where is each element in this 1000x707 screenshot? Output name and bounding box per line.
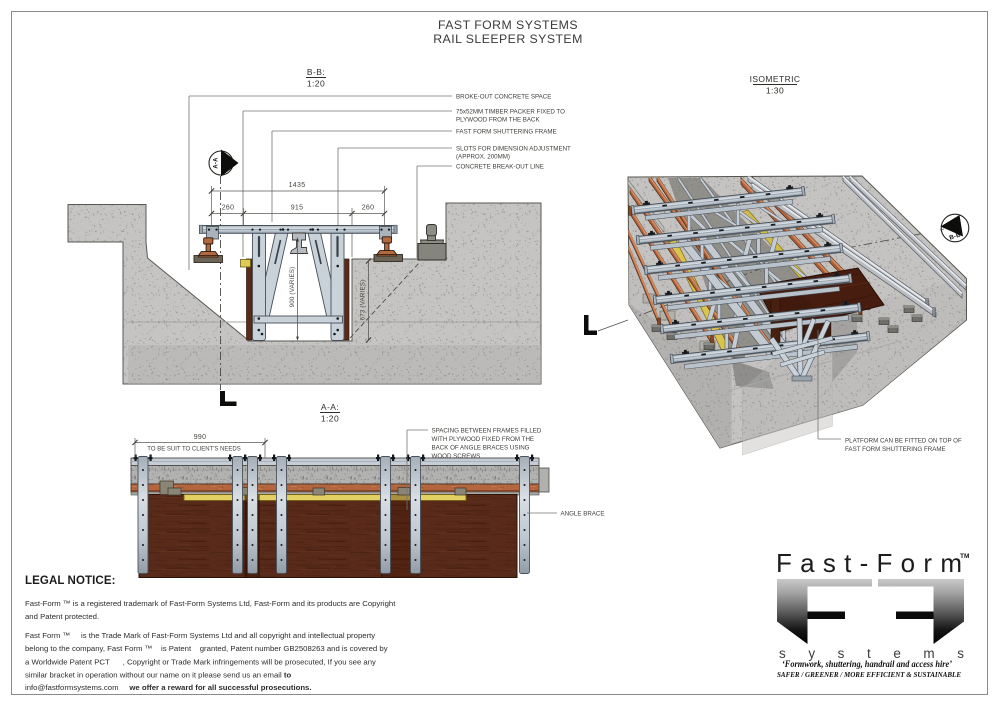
svg-text:75x52MM TIMBER PACKER FIXED TO: 75x52MM TIMBER PACKER FIXED TO: [456, 109, 565, 116]
svg-text:1:30: 1:30: [766, 86, 784, 96]
svg-text:900 (VARIES): 900 (VARIES): [289, 267, 296, 308]
svg-text:A-A:: A-A:: [321, 402, 339, 412]
svg-text:915: 915: [291, 205, 304, 212]
svg-text:similar bracket in operation w: similar bracket in operation without our…: [25, 671, 291, 680]
svg-text:TO BE SUIT TO CLIENT'S NEEDS: TO BE SUIT TO CLIENT'S NEEDS: [147, 447, 240, 453]
svg-text:TM: TM: [960, 553, 969, 560]
svg-text:(APPROX. 200MM): (APPROX. 200MM): [456, 154, 510, 161]
svg-text:990: 990: [194, 434, 207, 441]
svg-text:Fast-Form ™ is a registered tr: Fast-Form ™ is a registered trademark of…: [25, 599, 396, 608]
svg-text:belong to the company, Fast Fo: belong to the company, Fast Form ™ is Pa…: [25, 644, 388, 653]
svg-text:SAFER / GREENER / MORE EFFICIE: SAFER / GREENER / MORE EFFICIENT & SUSTA…: [777, 670, 961, 679]
svg-text:B-B:: B-B:: [307, 67, 325, 77]
svg-text:ISOMETRIC: ISOMETRIC: [750, 74, 801, 84]
svg-text:CONCRETE BREAK-OUT LINE: CONCRETE BREAK-OUT LINE: [456, 164, 544, 171]
svg-text:info@fastformsystems.com w: info@fastformsystems.com we offer a rewa…: [25, 683, 312, 692]
svg-text:FAST FORM SHUTTERING FRAME: FAST FORM SHUTTERING FRAME: [456, 129, 557, 136]
svg-text:Fast Form ™ is the Trade M: Fast Form ™ is the Trade Mark of Fast-Fo…: [25, 631, 375, 640]
svg-text:1:20: 1:20: [307, 79, 325, 89]
svg-text:SPACING BETWEEN FRAMES FILLED: SPACING BETWEEN FRAMES FILLED: [432, 428, 542, 435]
svg-text:WOOD SCREWS: WOOD SCREWS: [432, 453, 481, 460]
svg-text:1:20: 1:20: [321, 414, 339, 424]
svg-text:LEGAL NOTICE:: LEGAL NOTICE:: [25, 575, 116, 587]
svg-text:260: 260: [362, 205, 375, 212]
svg-text:PLATFORM CAN BE FITTED ON TOP: PLATFORM CAN BE FITTED ON TOP OF: [845, 438, 962, 445]
svg-text:and Patent protected.: and Patent protected.: [25, 612, 99, 621]
svg-text:BACK OF ANGLE BRACES USING: BACK OF ANGLE BRACES USING: [432, 445, 530, 452]
svg-text:FAST FORM SYSTEMS: FAST FORM SYSTEMS: [438, 18, 578, 32]
svg-text:BROKE-OUT CONCRETE SPACE: BROKE-OUT CONCRETE SPACE: [456, 94, 551, 101]
svg-text:673 (VARIES): 673 (VARIES): [360, 280, 367, 321]
svg-text:WITH PLYWOOD FIXED FROM THE: WITH PLYWOOD FIXED FROM THE: [432, 436, 535, 443]
svg-text:SLOTS FOR DIMENSION ADJUSTMENT: SLOTS FOR DIMENSION ADJUSTMENT: [456, 146, 571, 153]
svg-text:‘Formwork, shuttering, handrai: ‘Formwork, shuttering, handrail and acce…: [782, 659, 952, 670]
svg-text:PLYWOOD FROM THE BACK: PLYWOOD FROM THE BACK: [456, 117, 541, 124]
svg-text:RAIL SLEEPER SYSTEM: RAIL SLEEPER SYSTEM: [433, 32, 583, 46]
svg-text:260: 260: [222, 205, 235, 212]
svg-text:A-A: A-A: [214, 157, 220, 169]
svg-text:1435: 1435: [289, 182, 306, 189]
svg-text:ANGLE BRACE: ANGLE BRACE: [561, 511, 605, 518]
svg-text:FAST FORM SHUTTERING FRAME: FAST FORM SHUTTERING FRAME: [845, 446, 946, 453]
svg-text:a Worldwide Patent PCT ,: a Worldwide Patent PCT , Copyright or Tr…: [25, 658, 376, 667]
